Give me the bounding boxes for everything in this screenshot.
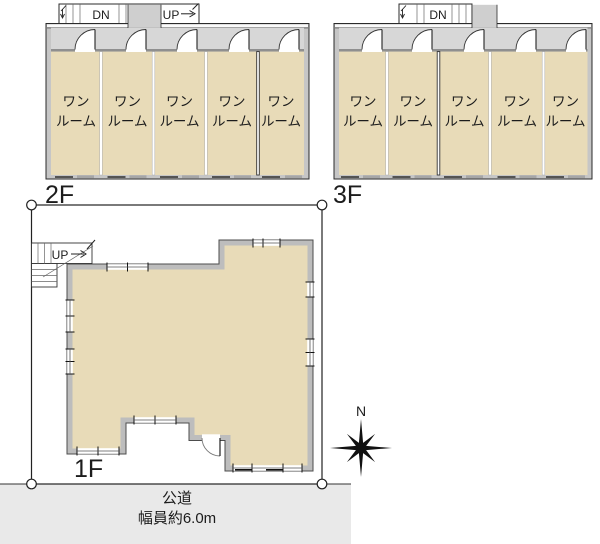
- window-icon: [77, 175, 94, 178]
- room-label: ルーム: [107, 114, 147, 129]
- room-label: ワン: [350, 94, 377, 109]
- room-label: ワン: [268, 94, 295, 109]
- floor-label-3f: 3F: [333, 181, 362, 209]
- partition-wall: [205, 52, 208, 175]
- window-icon: [130, 175, 147, 178]
- window-icon: [363, 175, 380, 178]
- window-icon: [568, 175, 585, 178]
- room-label: ルーム: [444, 114, 484, 129]
- room-label: ワン: [504, 94, 531, 109]
- floor-1f-plan: UP 1F: [32, 239, 315, 484]
- floor-label-1f: 1F: [74, 455, 103, 483]
- boundary-marker-icon: [317, 479, 327, 489]
- room-label: ワン: [451, 94, 478, 109]
- window-icon: [415, 175, 432, 178]
- floor-3f-plan: DN: [333, 4, 592, 209]
- boundary-marker-icon: [27, 200, 37, 210]
- stair-dn-label-2f: DN: [92, 8, 109, 22]
- outer-wall-band: [47, 25, 308, 28]
- entrance-door: [202, 434, 220, 456]
- compass-rose: N: [330, 403, 392, 477]
- room-label: ワン: [63, 94, 90, 109]
- window-icon: [234, 175, 251, 178]
- partition-wall: [489, 52, 492, 175]
- stair-dn-label-3f: DN: [429, 8, 446, 22]
- window-icon: [285, 175, 302, 178]
- room-label: ルーム: [212, 114, 252, 129]
- partition-wall: [542, 52, 545, 175]
- room-label: ルーム: [497, 114, 537, 129]
- stair-up-label-2f: UP: [163, 8, 180, 22]
- room-label: ルーム: [261, 114, 301, 129]
- boundary-marker-icon: [317, 200, 327, 210]
- building-footprint: [70, 243, 310, 468]
- floor-label-2f: 2F: [45, 181, 74, 209]
- stair-landing-3f: [472, 5, 497, 28]
- room-label: ワン: [114, 94, 141, 109]
- outer-wall-band: [335, 25, 591, 28]
- room-label: ワン: [552, 94, 579, 109]
- room-label: ルーム: [393, 114, 433, 129]
- room-label: ルーム: [56, 114, 96, 129]
- stair-landing-2f: [128, 5, 161, 28]
- road-width-note: 幅員約6.0m: [138, 510, 216, 527]
- partition-wall: [257, 52, 260, 175]
- room-label: ワン: [166, 94, 193, 109]
- floor-plan-drawing: 公道 幅員約6.0m: [0, 0, 600, 544]
- stair-up-label-1f: UP: [52, 248, 69, 262]
- window-icon: [520, 175, 537, 178]
- partition-wall: [100, 52, 103, 175]
- window-icon: [466, 175, 483, 178]
- floor-plan-page: 公道 幅員約6.0m: [0, 0, 600, 544]
- room-label: ルーム: [343, 114, 383, 129]
- road-name: 公道: [162, 490, 192, 507]
- window-icon: [182, 175, 199, 178]
- room-label: ワン: [219, 94, 246, 109]
- room-label: ルーム: [159, 114, 199, 129]
- road-area: 公道 幅員約6.0m: [0, 484, 351, 544]
- boundary-marker-icon: [27, 479, 37, 489]
- north-label: N: [356, 403, 366, 419]
- room-label: ワン: [400, 94, 427, 109]
- floor-2f-plan: DN UP: [45, 4, 309, 210]
- room-label: ルーム: [545, 114, 585, 129]
- partition-wall: [437, 52, 440, 175]
- partition-wall: [386, 52, 389, 175]
- partition-wall: [152, 52, 155, 175]
- compass-star-icon: [330, 419, 392, 477]
